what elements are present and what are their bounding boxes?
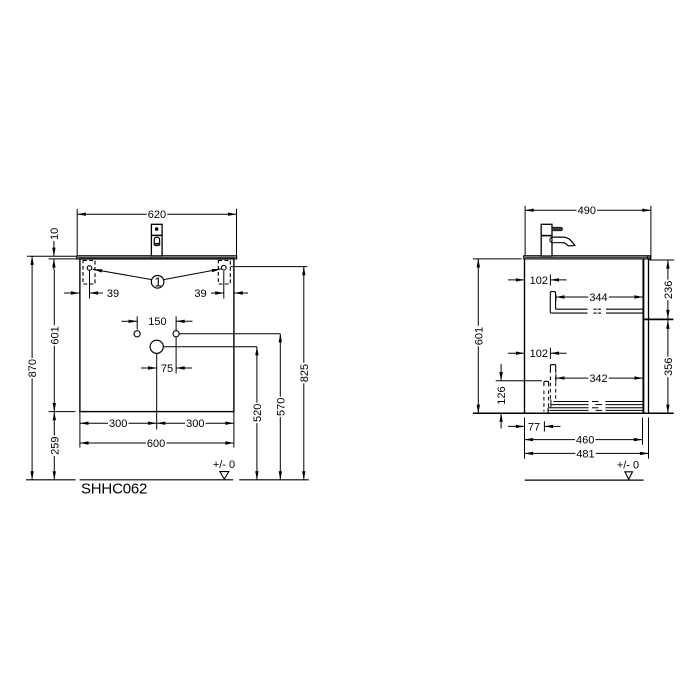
svg-text:259: 259 bbox=[49, 437, 61, 455]
svg-text:481: 481 bbox=[576, 448, 594, 460]
svg-text:SHHC062: SHHC062 bbox=[81, 481, 147, 498]
svg-text:344: 344 bbox=[589, 292, 607, 304]
svg-text:620: 620 bbox=[148, 209, 166, 221]
svg-text:570: 570 bbox=[275, 398, 287, 416]
svg-text:601: 601 bbox=[49, 326, 61, 344]
svg-text:460: 460 bbox=[576, 435, 594, 447]
svg-text:236: 236 bbox=[663, 281, 675, 299]
svg-text:10: 10 bbox=[49, 228, 61, 240]
svg-text:300: 300 bbox=[186, 418, 204, 430]
svg-text:102: 102 bbox=[530, 275, 548, 287]
svg-text:601: 601 bbox=[473, 327, 485, 345]
svg-text:+/- 0: +/- 0 bbox=[617, 459, 639, 471]
svg-text:126: 126 bbox=[496, 386, 508, 404]
svg-text:490: 490 bbox=[578, 205, 596, 217]
svg-text:150: 150 bbox=[148, 316, 166, 328]
svg-text:600: 600 bbox=[147, 438, 165, 450]
svg-text:300: 300 bbox=[109, 418, 127, 430]
svg-text:342: 342 bbox=[589, 373, 607, 385]
svg-text:39: 39 bbox=[194, 288, 206, 300]
svg-text:870: 870 bbox=[27, 359, 39, 377]
svg-text:77: 77 bbox=[528, 421, 540, 433]
svg-text:520: 520 bbox=[252, 404, 264, 422]
svg-text:102: 102 bbox=[530, 348, 548, 360]
svg-text:825: 825 bbox=[299, 364, 311, 382]
svg-text:356: 356 bbox=[663, 358, 675, 376]
svg-text:39: 39 bbox=[107, 288, 119, 300]
svg-text:1: 1 bbox=[154, 274, 161, 289]
svg-text:+/- 0: +/- 0 bbox=[213, 459, 235, 471]
svg-text:75: 75 bbox=[161, 363, 173, 375]
